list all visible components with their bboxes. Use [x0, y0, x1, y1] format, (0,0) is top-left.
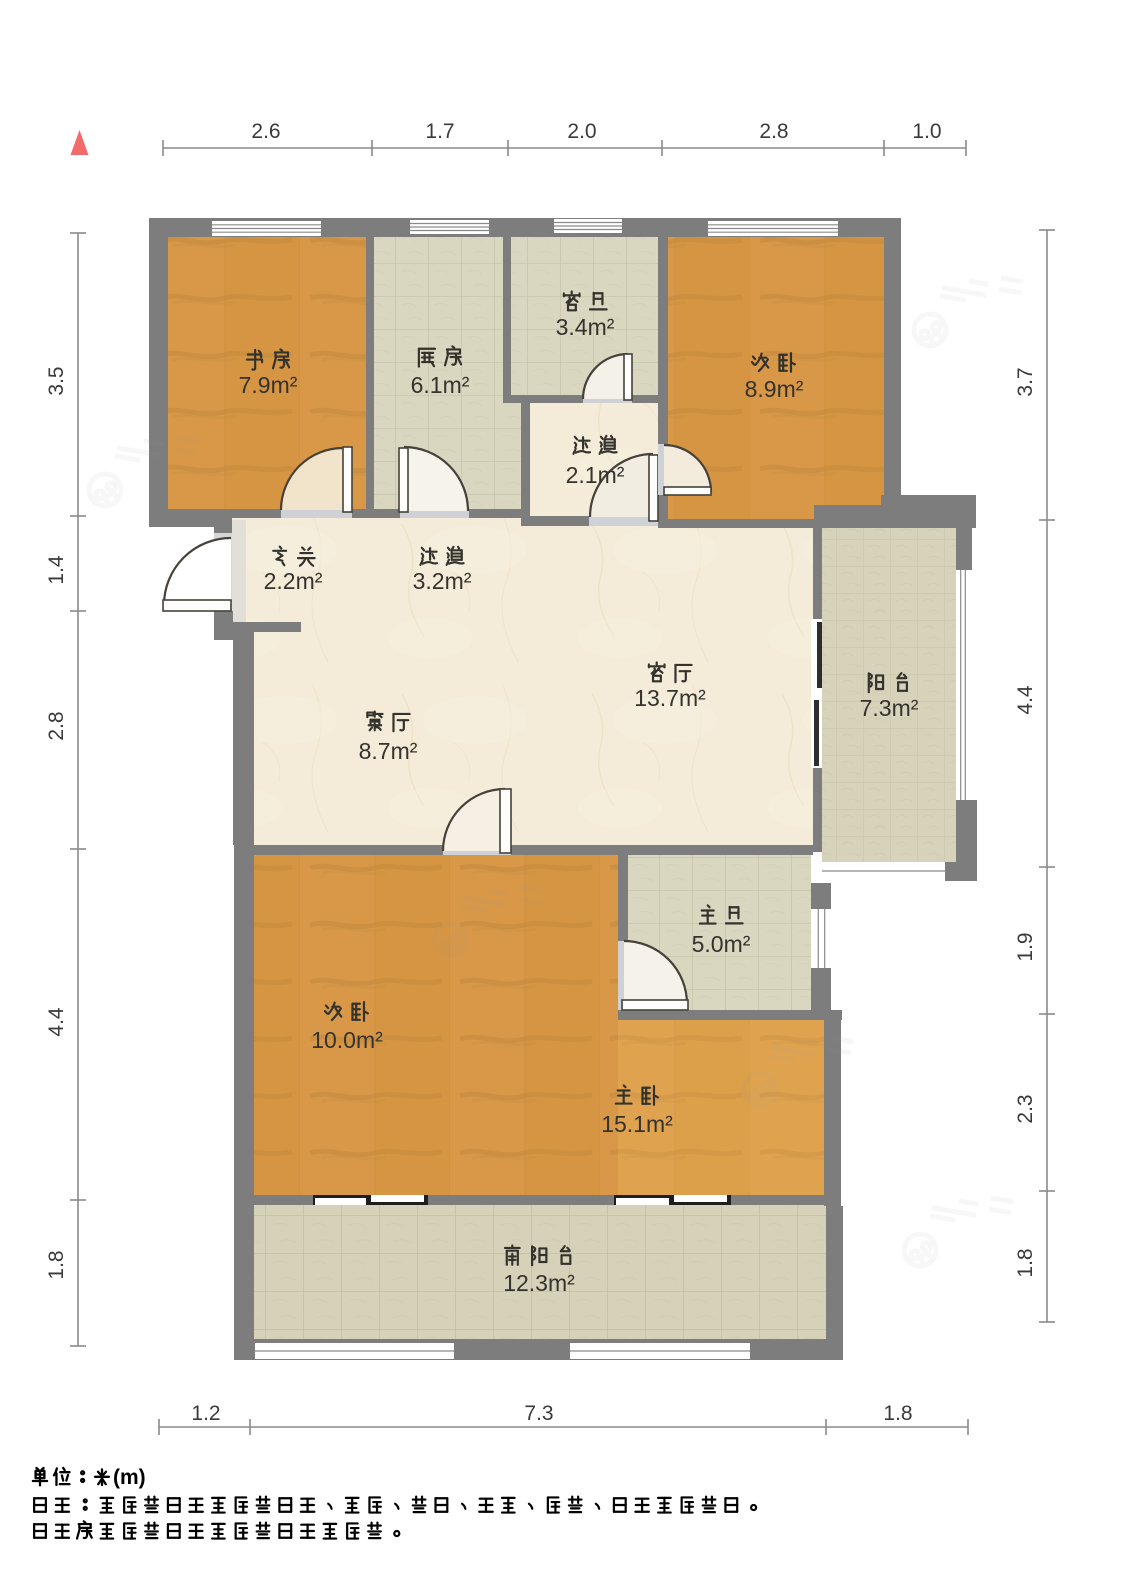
svg-text:4.4: 4.4 [45, 1007, 68, 1037]
svg-text:2.1m²: 2.1m² [566, 462, 625, 488]
svg-text:3.5: 3.5 [45, 366, 68, 395]
svg-text:3.7: 3.7 [1014, 367, 1037, 396]
svg-text:8.9m²: 8.9m² [745, 376, 804, 402]
svg-text:4.4: 4.4 [1014, 685, 1037, 715]
svg-text:8.7m²: 8.7m² [359, 738, 418, 764]
svg-text:1.0: 1.0 [912, 120, 941, 143]
svg-text:2.6: 2.6 [251, 120, 280, 143]
svg-text:1.9: 1.9 [1014, 932, 1037, 961]
svg-text:5.0m²: 5.0m² [692, 931, 751, 957]
svg-text:13.7m²: 13.7m² [634, 685, 706, 711]
svg-text:3.2m²: 3.2m² [413, 568, 472, 594]
svg-text:2.8: 2.8 [759, 120, 788, 143]
svg-text:7.9m²: 7.9m² [239, 372, 298, 398]
svg-text:15.1m²: 15.1m² [601, 1111, 673, 1137]
svg-text:10.0m²: 10.0m² [311, 1027, 383, 1053]
svg-text:12.3m²: 12.3m² [503, 1270, 575, 1296]
svg-text:2.0: 2.0 [567, 120, 596, 143]
svg-text:3.4m²: 3.4m² [556, 314, 615, 340]
svg-text:2.3: 2.3 [1014, 1094, 1037, 1123]
svg-text:1.8: 1.8 [45, 1250, 68, 1279]
svg-text:1.2: 1.2 [191, 1402, 220, 1425]
svg-text:2.8: 2.8 [45, 711, 68, 740]
svg-text:6.1m²: 6.1m² [411, 372, 470, 398]
svg-text:1.8: 1.8 [1014, 1248, 1037, 1277]
svg-text:1.4: 1.4 [45, 555, 68, 585]
svg-text:1.8: 1.8 [883, 1402, 912, 1425]
svg-text:7.3: 7.3 [524, 1402, 553, 1425]
svg-text:7.3m²: 7.3m² [860, 695, 919, 721]
svg-text:2.2m²: 2.2m² [264, 568, 323, 594]
svg-text:(m): (m) [113, 1466, 146, 1489]
svg-text:1.7: 1.7 [425, 120, 454, 143]
